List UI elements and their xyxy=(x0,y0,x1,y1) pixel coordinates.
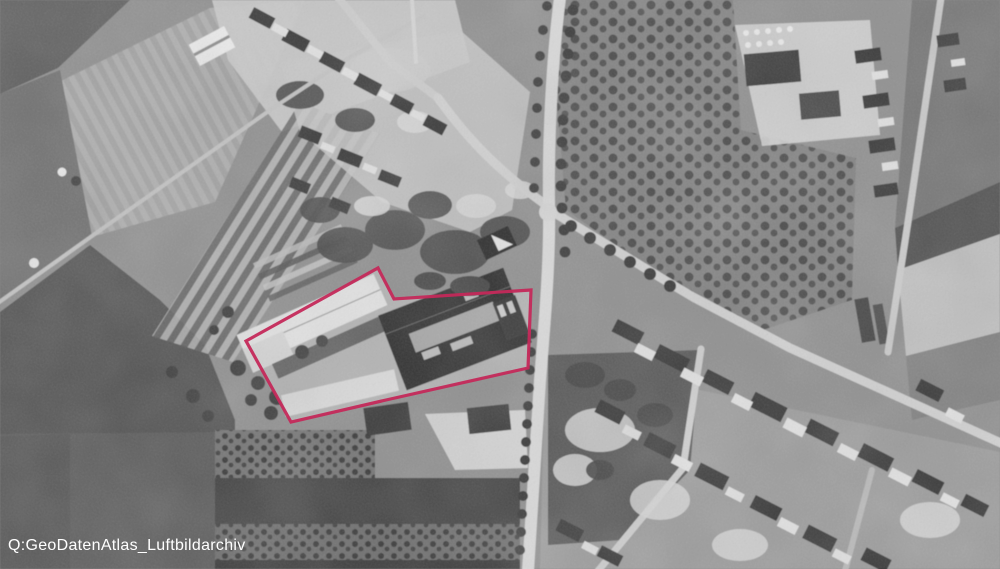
aerial-photo-viewport: Q:GeoDatenAtlas_Luftbildarchiv xyxy=(0,0,1000,569)
source-caption: Q:GeoDatenAtlas_Luftbildarchiv xyxy=(8,537,246,555)
aerial-photograph xyxy=(0,0,1000,569)
photo-grain xyxy=(0,0,1000,569)
